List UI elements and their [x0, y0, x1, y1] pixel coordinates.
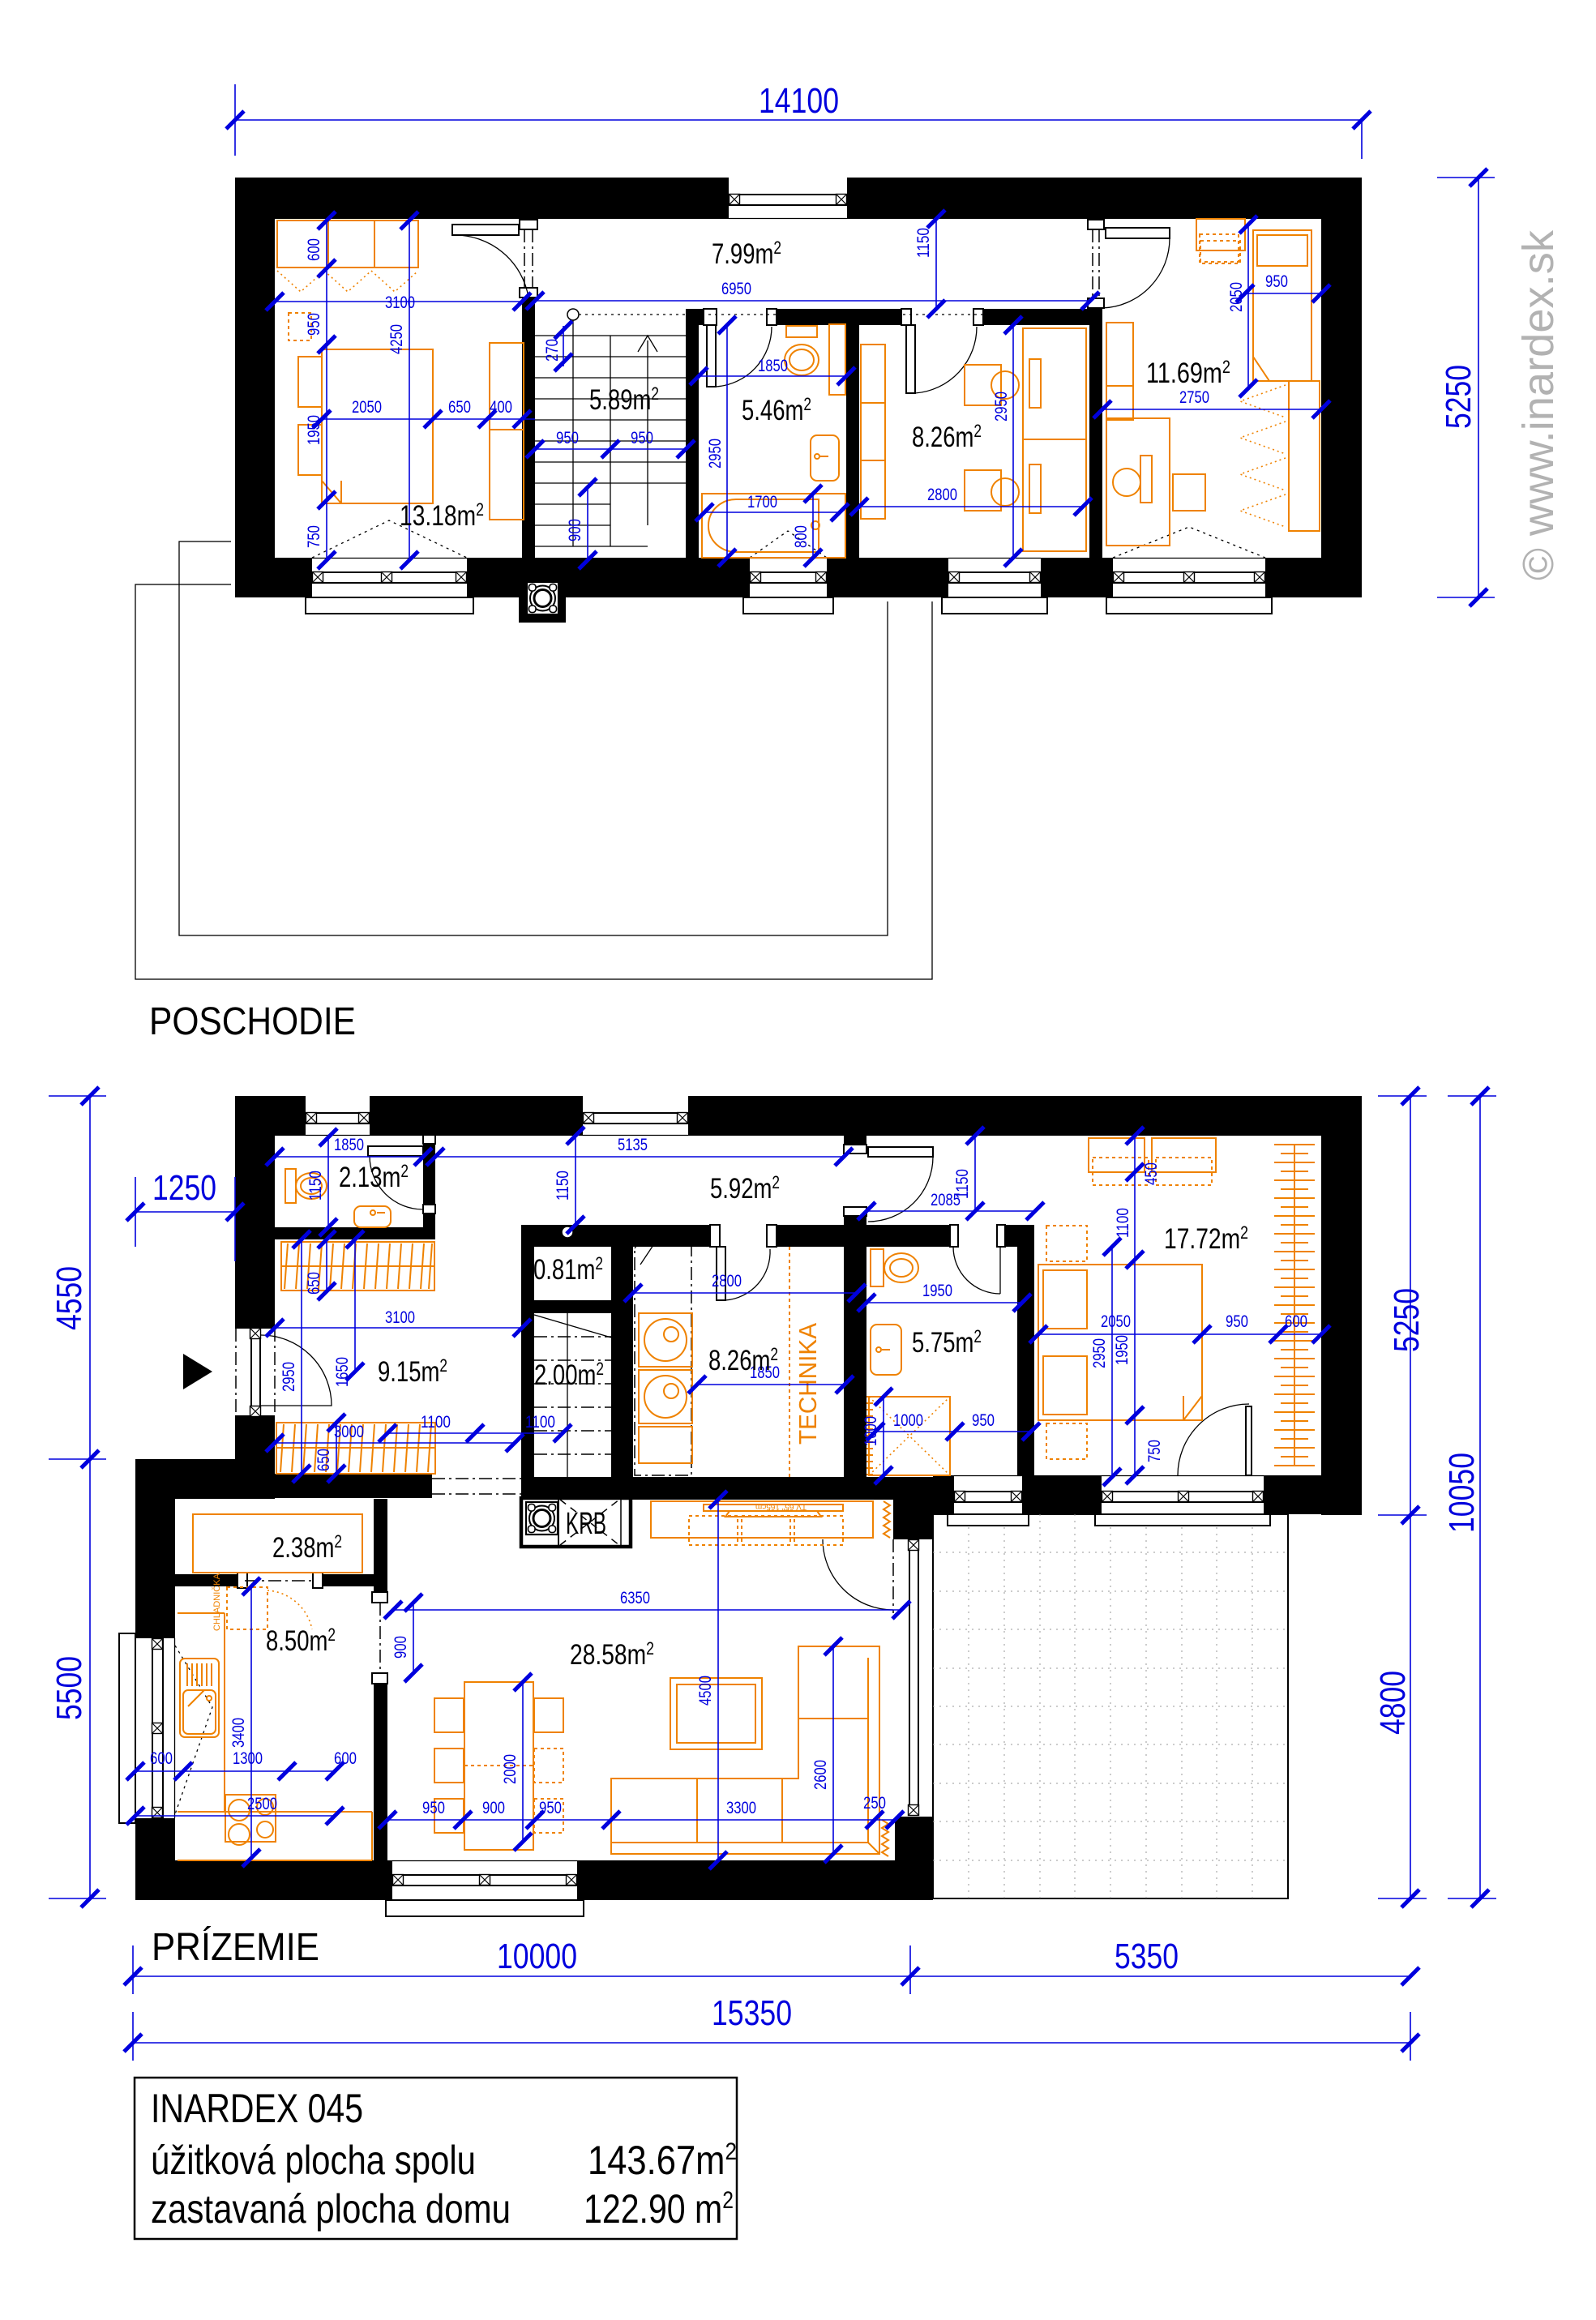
svg-text:2950: 2950 [1090, 1338, 1109, 1368]
svg-text:900: 900 [482, 1799, 505, 1817]
svg-text:1950: 1950 [922, 1282, 952, 1300]
svg-text:5250: 5250 [1387, 1288, 1427, 1352]
svg-text:10050: 10050 [1442, 1453, 1482, 1533]
svg-text:8.26m2: 8.26m2 [912, 421, 982, 453]
svg-text:2050: 2050 [1101, 1312, 1131, 1331]
svg-text:5250: 5250 [1439, 365, 1478, 429]
svg-text:5135: 5135 [618, 1136, 648, 1154]
svg-text:6950: 6950 [721, 280, 751, 298]
svg-text:2800: 2800 [927, 486, 957, 504]
svg-text:© www.inardex.sk: © www.inardex.sk [1514, 229, 1563, 580]
svg-text:5.89m2: 5.89m2 [589, 383, 659, 416]
svg-text:INARDEX 045: INARDEX 045 [151, 2086, 363, 2131]
svg-text:2.38m2: 2.38m2 [272, 1531, 342, 1564]
svg-text:5.75m2: 5.75m2 [912, 1326, 982, 1359]
svg-text:15350: 15350 [712, 1993, 792, 2033]
svg-text:5500: 5500 [49, 1656, 89, 1720]
svg-text:950: 950 [422, 1799, 445, 1817]
svg-text:2600: 2600 [811, 1760, 830, 1790]
svg-text:600: 600 [1285, 1312, 1307, 1331]
svg-text:600: 600 [150, 1749, 173, 1768]
svg-text:950: 950 [1226, 1312, 1248, 1331]
svg-text:1100: 1100 [1114, 1208, 1132, 1238]
svg-text:2950: 2950 [280, 1362, 298, 1392]
svg-text:650: 650 [314, 1449, 333, 1471]
svg-text:28.58m2: 28.58m2 [570, 1638, 654, 1671]
svg-text:4800: 4800 [1373, 1671, 1413, 1735]
svg-text:2.13m2: 2.13m2 [339, 1161, 409, 1193]
svg-text:4250: 4250 [387, 324, 406, 354]
svg-text:6350: 6350 [620, 1589, 650, 1607]
svg-text:8.50m2: 8.50m2 [266, 1624, 336, 1657]
svg-text:3100: 3100 [385, 293, 415, 312]
svg-text:600: 600 [305, 238, 323, 261]
svg-text:1850: 1850 [758, 357, 788, 375]
svg-text:1100: 1100 [525, 1413, 555, 1432]
svg-text:3400: 3400 [229, 1718, 248, 1748]
svg-text:250: 250 [863, 1794, 886, 1813]
svg-text:750: 750 [305, 525, 323, 548]
svg-text:1650: 1650 [333, 1357, 352, 1387]
svg-text:13.18m2: 13.18m2 [400, 499, 484, 532]
svg-text:650: 650 [305, 1272, 323, 1295]
svg-text:270: 270 [543, 339, 562, 362]
svg-text:TV 65" 165cm: TV 65" 165cm [755, 1502, 807, 1511]
svg-text:1700: 1700 [747, 493, 777, 512]
svg-text:TECHNIKA: TECHNIKA [794, 1323, 822, 1445]
svg-text:17.72m2: 17.72m2 [1164, 1222, 1248, 1255]
svg-text:11.69m2: 11.69m2 [1146, 357, 1230, 389]
svg-text:1100: 1100 [421, 1413, 451, 1432]
svg-text:2750: 2750 [1179, 388, 1209, 407]
svg-text:143.67m2: 143.67m2 [588, 2138, 737, 2183]
svg-text:1150: 1150 [554, 1171, 572, 1201]
svg-text:950: 950 [556, 429, 579, 447]
svg-text:KRB: KRB [566, 1507, 606, 1541]
svg-text:2950: 2950 [706, 439, 725, 469]
svg-text:4550: 4550 [49, 1266, 89, 1330]
svg-text:CHLADNIČKA: CHLADNIČKA [212, 1573, 222, 1631]
svg-text:2050: 2050 [352, 398, 382, 417]
svg-text:122.90 m2: 122.90 m2 [584, 2186, 734, 2232]
svg-text:3300: 3300 [726, 1799, 756, 1817]
svg-text:650: 650 [448, 398, 471, 417]
svg-text:10000: 10000 [497, 1937, 577, 1976]
svg-text:5.46m2: 5.46m2 [742, 394, 811, 426]
svg-text:950: 950 [972, 1411, 995, 1430]
svg-text:3100: 3100 [385, 1308, 415, 1327]
svg-text:7.99m2: 7.99m2 [712, 238, 781, 270]
svg-text:950: 950 [539, 1799, 562, 1817]
svg-text:9.15m2: 9.15m2 [378, 1355, 447, 1388]
svg-text:0.81m2: 0.81m2 [533, 1253, 603, 1286]
svg-text:1150: 1150 [306, 1171, 325, 1201]
svg-text:950: 950 [305, 313, 323, 336]
svg-text:14100: 14100 [759, 81, 839, 121]
svg-text:1150: 1150 [914, 228, 933, 258]
svg-text:POSCHODIE: POSCHODIE [149, 1000, 356, 1043]
svg-text:1300: 1300 [233, 1749, 263, 1768]
svg-text:450: 450 [1142, 1162, 1161, 1185]
svg-text:PRÍZEMIE: PRÍZEMIE [152, 1926, 319, 1969]
svg-text:1950: 1950 [1113, 1335, 1132, 1365]
svg-text:4500: 4500 [696, 1676, 715, 1706]
svg-text:2950: 2950 [992, 392, 1011, 422]
svg-text:1150: 1150 [953, 1169, 972, 1199]
svg-text:400: 400 [490, 398, 512, 417]
svg-text:2.00m2: 2.00m2 [534, 1359, 604, 1391]
svg-text:1250: 1250 [152, 1168, 216, 1208]
svg-text:2500: 2500 [247, 1795, 277, 1813]
svg-text:1000: 1000 [893, 1411, 923, 1430]
svg-text:8.26m2: 8.26m2 [708, 1344, 778, 1376]
svg-text:5.92m2: 5.92m2 [710, 1172, 780, 1205]
svg-text:900: 900 [566, 519, 584, 541]
svg-text:úžitková plocha spolu: úžitková plocha spolu [151, 2138, 476, 2183]
svg-text:950: 950 [1265, 272, 1288, 291]
svg-text:750: 750 [1145, 1440, 1164, 1462]
svg-text:zastavaná plocha domu: zastavaná plocha domu [151, 2186, 511, 2232]
svg-text:2800: 2800 [712, 1272, 742, 1291]
svg-text:800: 800 [792, 525, 811, 548]
svg-text:2000: 2000 [501, 1754, 520, 1784]
svg-text:3000: 3000 [334, 1423, 364, 1441]
svg-text:950: 950 [631, 429, 653, 447]
svg-text:900: 900 [392, 1636, 410, 1659]
svg-text:600: 600 [334, 1749, 357, 1768]
svg-text:5350: 5350 [1115, 1937, 1179, 1976]
svg-text:1850: 1850 [334, 1136, 364, 1154]
